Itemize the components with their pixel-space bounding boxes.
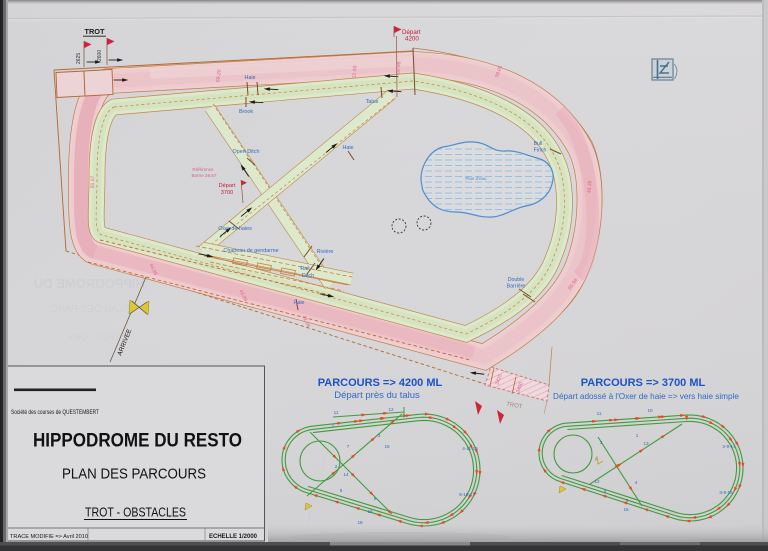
svg-text:Brook: Brook — [239, 109, 253, 115]
svg-text:14: 14 — [343, 472, 349, 477]
svg-text:4: 4 — [635, 480, 638, 485]
svg-text:12: 12 — [594, 479, 600, 484]
svg-text:16: 16 — [367, 509, 373, 514]
svg-text:10: 10 — [647, 408, 653, 413]
svg-text:Bull: Bull — [534, 141, 543, 147]
svg-text:Départ adossé à l'Oxer de haie: Départ adossé à l'Oxer de haie => vers h… — [553, 392, 739, 401]
svg-text:3: 3 — [600, 440, 603, 445]
svg-text:12: 12 — [388, 407, 394, 412]
svg-text:22.93: 22.93 — [351, 65, 358, 78]
svg-text:TROT - OBSTACLES: TROT - OBSTACLES — [85, 505, 186, 520]
svg-text:Barrière: Barrière — [507, 284, 526, 290]
svg-text:Haie: Haie — [244, 75, 255, 81]
svg-text:PLAN DES PARC: PLAN DES PARC — [51, 304, 130, 315]
svg-text:TRACE MODIFIE => Avril 2010: TRACE MODIFIE => Avril 2010 — [10, 534, 88, 540]
svg-text:4200: 4200 — [405, 36, 419, 43]
svg-text:11: 11 — [334, 410, 339, 415]
svg-text:6: 6 — [604, 489, 607, 494]
svg-text:2: 2 — [335, 464, 338, 469]
svg-text:46.39: 46.39 — [586, 180, 593, 193]
svg-text:2-9-14: 2-9-14 — [722, 444, 736, 449]
svg-text:3700: 3700 — [221, 190, 233, 196]
svg-text:Référence: Référence — [192, 167, 214, 172]
svg-text:Haie: Haie — [342, 145, 353, 151]
svg-text:HIPPODROME DU: HIPPODROME DU — [34, 276, 145, 291]
svg-text:9-10-17: 9-10-17 — [459, 492, 475, 497]
svg-text:3: 3 — [378, 433, 381, 438]
svg-text:16: 16 — [623, 507, 629, 512]
svg-text:Ditch: Ditch — [302, 273, 314, 279]
svg-text:Finch: Finch — [534, 148, 547, 154]
svg-text:PARCOURS => 4200 ML: PARCOURS => 4200 ML — [318, 377, 443, 389]
svg-text:1: 1 — [636, 433, 639, 438]
svg-text:Départ près du talus: Départ près du talus — [334, 390, 420, 401]
svg-text:Oxer de haies: Oxer de haies — [218, 226, 252, 232]
svg-text:15: 15 — [384, 444, 390, 449]
svg-text:HIPPODROME DU RESTO: HIPPODROME DU RESTO — [33, 430, 242, 452]
svg-text:PARCOURS => 3700 ML: PARCOURS => 3700 ML — [581, 377, 706, 389]
svg-text:PLAN DES PARCOURS: PLAN DES PARCOURS — [62, 467, 206, 483]
svg-text:1: 1 — [332, 423, 335, 428]
svg-text:4-11-18: 4-11-18 — [462, 446, 478, 451]
svg-text:Rail: Rail — [300, 266, 309, 272]
svg-text:13: 13 — [643, 441, 649, 446]
svg-text:8: 8 — [374, 496, 377, 501]
svg-text:2625: 2625 — [76, 53, 82, 64]
svg-text:Open Ditch: Open Ditch — [233, 149, 260, 155]
svg-text:Départ: Départ — [219, 183, 236, 189]
svg-text:Borne 26.57: Borne 26.57 — [191, 173, 216, 178]
svg-text:Plan d'eau: Plan d'eau — [465, 176, 487, 181]
svg-text:11: 11 — [597, 411, 602, 416]
svg-text:5: 5 — [626, 498, 629, 503]
svg-text:9: 9 — [340, 488, 343, 493]
svg-text:Double: Double — [508, 277, 525, 283]
svg-text:Haie: Haie — [293, 300, 304, 306]
svg-text:2600: 2600 — [97, 50, 103, 61]
svg-text:Chapeau de gendarme: Chapeau de gendarme — [223, 248, 278, 254]
svg-text:TROT: TROT — [84, 27, 105, 36]
svg-text:Société des courses de QUESTEM: Société des courses de QUESTEMBERT — [11, 409, 99, 416]
svg-text:7: 7 — [347, 444, 350, 449]
svg-text:TROT - OBS: TROT - OBS — [69, 332, 120, 342]
svg-text:91.07: 91.07 — [90, 175, 96, 188]
svg-text:ECHELLE 1/2000: ECHELLE 1/2000 — [209, 534, 258, 540]
svg-text:3-8-15: 3-8-15 — [719, 490, 733, 495]
svg-text:Rivière: Rivière — [317, 249, 334, 255]
svg-text:Talus: Talus — [366, 99, 379, 105]
